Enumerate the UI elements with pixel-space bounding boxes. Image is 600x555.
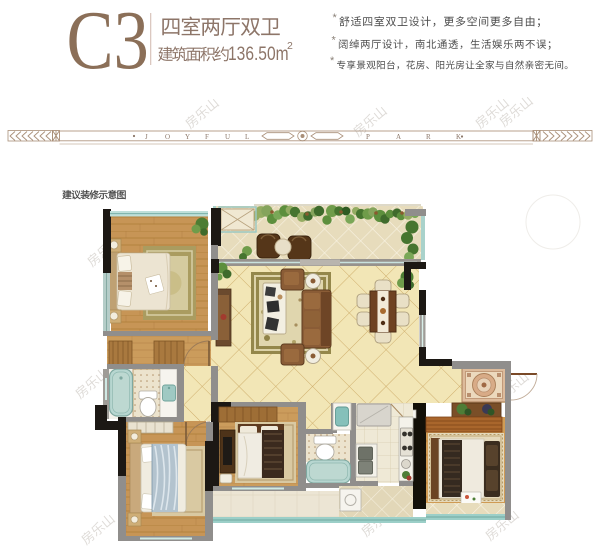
svg-text:*: * — [332, 35, 337, 47]
svg-text:J: J — [145, 133, 148, 141]
svg-text:A: A — [396, 133, 401, 141]
svg-text:2: 2 — [287, 40, 293, 52]
svg-text:C3: C3 — [67, 0, 149, 86]
svg-text:R: R — [426, 133, 431, 141]
svg-text:O: O — [165, 133, 170, 141]
svg-text:*: * — [333, 12, 338, 24]
svg-text:F: F — [205, 133, 209, 141]
svg-text:Y: Y — [185, 133, 190, 141]
svg-text:136.50m: 136.50m — [228, 43, 289, 65]
svg-text:L: L — [245, 133, 249, 141]
svg-text:K: K — [456, 133, 461, 141]
svg-text:U: U — [225, 133, 230, 141]
svg-text:*: * — [330, 55, 335, 67]
svg-text:P: P — [366, 133, 370, 141]
